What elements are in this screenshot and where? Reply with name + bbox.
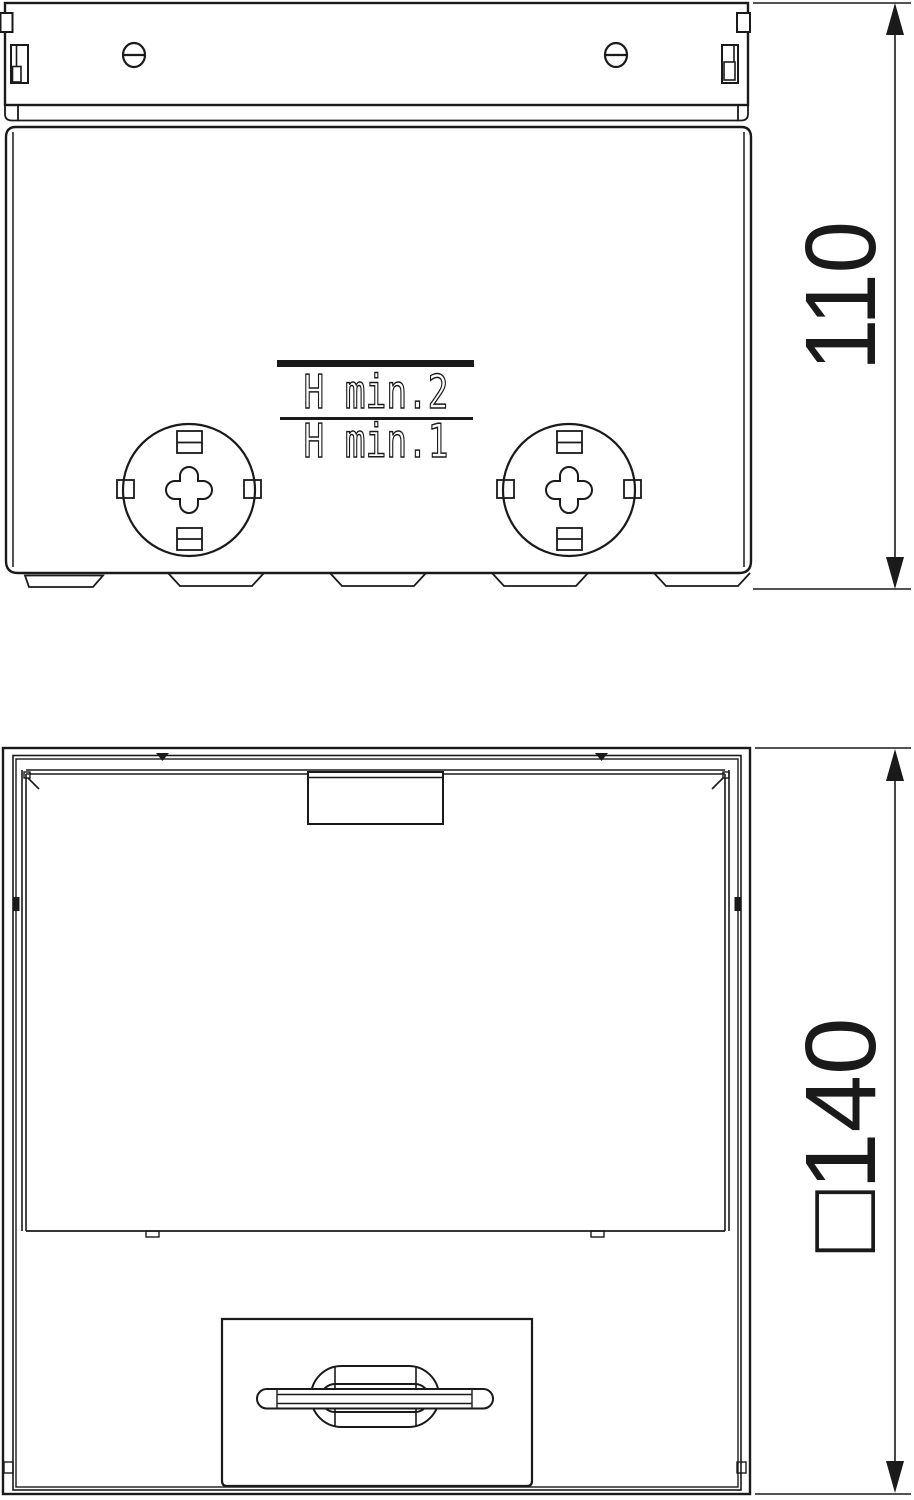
bottom-feet: [25, 573, 750, 587]
chamfer-right: [712, 778, 723, 789]
engraving-h-min-1: H min.1: [304, 414, 449, 468]
left-knockout: [117, 424, 261, 556]
plan-view: □140: [3, 748, 911, 1494]
left-clip: [11, 45, 28, 83]
height-engraving: H min.2 H min.1: [277, 360, 474, 468]
lid-tab: [308, 772, 443, 824]
floor-box-drawing: H min.2 H min.1: [0, 0, 914, 1500]
right-screw-icon: [605, 43, 627, 67]
arrow-down-icon: [886, 1461, 904, 1493]
right-corner-tab: [737, 13, 750, 32]
arrow-up-icon: [886, 3, 904, 35]
frame-band: [5, 105, 748, 121]
hinge-mark-right: [735, 897, 742, 911]
dimension-width-140: □140: [755, 748, 911, 1494]
technical-drawing-canvas: H min.2 H min.1: [0, 0, 914, 1500]
chamfer-left: [28, 778, 39, 789]
cross-knockout-icon: [546, 467, 592, 513]
right-clip: [722, 45, 738, 83]
right-knockout: [497, 424, 641, 556]
side-view: H min.2 H min.1: [1, 3, 912, 589]
handle-bar: [257, 1389, 493, 1409]
box-body-outline: [6, 127, 751, 573]
engraving-h-min-2: H min.2: [304, 365, 449, 419]
dimension-height-110: 110: [753, 3, 911, 589]
arrow-down-icon: [886, 557, 904, 589]
cross-knockout-icon: [166, 467, 212, 513]
corner-square-left: [24, 772, 30, 778]
cover-lid: [22, 770, 729, 1237]
dimension-value-140: □140: [785, 1018, 897, 1253]
left-corner-tab: [1, 13, 13, 32]
dimension-value-110: 110: [785, 221, 897, 371]
top-edge-mark-left: [156, 753, 169, 761]
side-tick-left: [4, 1462, 13, 1473]
handle-panel: [222, 1319, 532, 1486]
cover-plate-outline: [5, 3, 748, 105]
corner-square-right: [723, 772, 729, 778]
top-edge-mark-right: [595, 753, 608, 761]
arrow-up-icon: [886, 749, 904, 781]
hinge-mark-left: [13, 897, 20, 911]
left-screw-icon: [123, 43, 145, 67]
